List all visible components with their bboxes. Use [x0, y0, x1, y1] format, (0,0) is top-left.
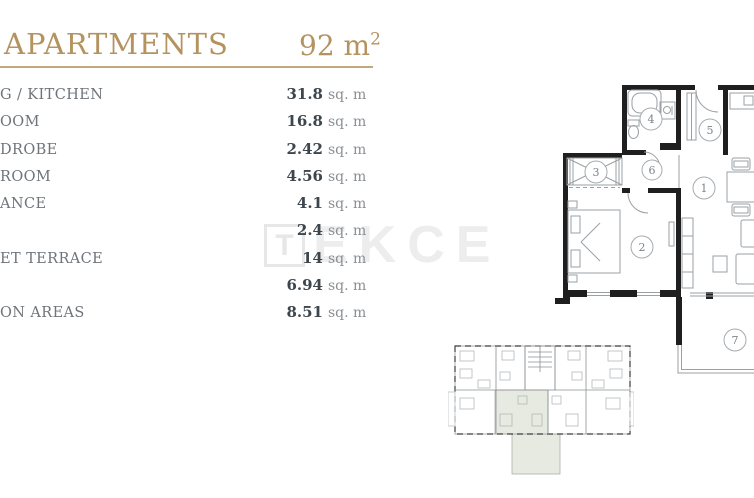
room-row: ET TERRACE 14 sq. m [0, 249, 368, 276]
room-area-unit: sq. m [328, 87, 368, 103]
room-label: ANCE [0, 196, 275, 212]
dining-table-icon [727, 158, 754, 216]
total-area-value: 92 m [299, 29, 370, 62]
room-number-5: 5 [707, 124, 714, 137]
hall-closet [687, 93, 696, 140]
room-area-value: 31.8 [275, 85, 323, 103]
room-area-unit: sq. m [328, 114, 368, 130]
room-label: ON AREAS [0, 305, 275, 321]
room-label: ROOM [0, 169, 275, 185]
total-area: 92 m2 [299, 29, 381, 62]
room-area-value: 2.4 [275, 221, 323, 239]
room-number-4: 4 [648, 113, 655, 126]
room-number-7: 7 [732, 334, 739, 347]
room-list: G / KITCHEN 31.8 sq. m OOM 16.8 sq. m DR… [0, 85, 368, 331]
room-area-unit: sq. m [328, 305, 368, 321]
room-area-unit: sq. m [328, 196, 368, 212]
room-row: DROBE 2.42 sq. m [0, 140, 368, 167]
room-area-unit: sq. m [328, 278, 368, 294]
stair-core [525, 346, 555, 390]
room-area-unit: sq. m [328, 169, 368, 185]
highlighted-unit [495, 390, 560, 474]
room-number-1: 1 [701, 182, 708, 195]
room-area-value: 14 [275, 249, 323, 267]
room-label: DROBE [0, 142, 275, 158]
page-title: APARTMENTS [4, 27, 229, 61]
room-area-value: 2.42 [275, 140, 323, 158]
room-label: ET TERRACE [0, 251, 275, 267]
room-row: G / KITCHEN 31.8 sq. m [0, 85, 368, 112]
room-label: G / KITCHEN [0, 87, 275, 103]
divider-rule [0, 66, 373, 68]
room-area-value: 4.1 [275, 194, 323, 212]
floorplan-page: T EKCE APARTMENTS 92 m2 G / KITCHEN 31.8… [0, 0, 754, 498]
room-row: 6.94 sq. m [0, 276, 368, 303]
room-row: ANCE 4.1 sq. m [0, 194, 368, 221]
room-row: ON AREAS 8.51 sq. m [0, 303, 368, 330]
room-area-unit: sq. m [328, 251, 368, 267]
room-number-2: 2 [639, 241, 646, 254]
room-row: 2.4 sq. m [0, 221, 368, 248]
bed-icon [568, 201, 620, 282]
room-row: OOM 16.8 sq. m [0, 112, 368, 139]
key-plan [448, 336, 634, 478]
sofa-icon [713, 220, 754, 284]
room-area-value: 8.51 [275, 303, 323, 321]
room-area-value: 4.56 [275, 167, 323, 185]
room-number-3: 3 [593, 166, 600, 179]
room-area-unit: sq. m [328, 142, 368, 158]
room-number-6: 6 [649, 164, 656, 177]
room-area-value: 6.94 [275, 276, 323, 294]
room-row: ROOM 4.56 sq. m [0, 167, 368, 194]
sink-icon [660, 102, 675, 119]
kitchen-counter [730, 93, 754, 109]
room-area-value: 16.8 [275, 112, 323, 130]
total-area-sup: 2 [370, 30, 381, 50]
room-area-unit: sq. m [328, 223, 368, 239]
room-label: OOM [0, 114, 275, 130]
toilet-icon [628, 120, 639, 139]
